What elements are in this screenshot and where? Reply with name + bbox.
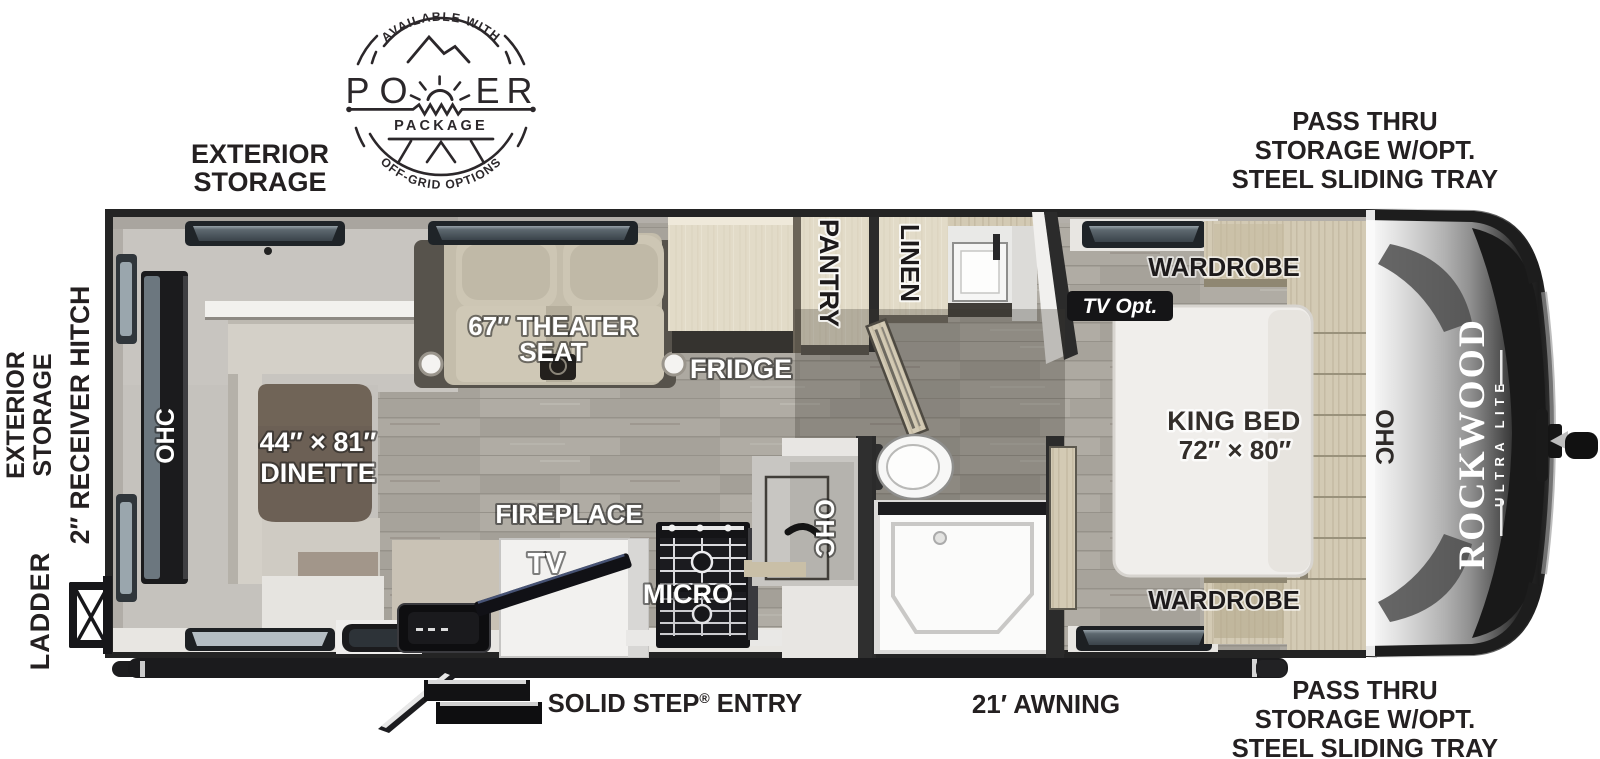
- svg-text:FRIDGE: FRIDGE: [690, 354, 792, 384]
- svg-text:ULTRA LITE: ULTRA LITE: [1492, 381, 1507, 507]
- svg-text:LADDER: LADDER: [25, 552, 55, 671]
- svg-text:WARDROBE: WARDROBE: [1148, 254, 1300, 282]
- svg-text:TV: TV: [527, 548, 565, 580]
- svg-text:STORAGE W/OPT.: STORAGE W/OPT.: [1255, 137, 1476, 165]
- svg-text:OHC: OHC: [1370, 409, 1398, 465]
- svg-text:AVAILABLE WITH: AVAILABLE WITH: [379, 10, 503, 45]
- svg-text:LINEN: LINEN: [895, 224, 925, 302]
- svg-text:STORAGE: STORAGE: [193, 167, 326, 197]
- svg-text:PANTRY: PANTRY: [814, 219, 844, 327]
- svg-text:2″ RECEIVER HITCH: 2″ RECEIVER HITCH: [65, 286, 95, 545]
- svg-text:OHC: OHC: [810, 499, 840, 557]
- svg-text:R: R: [507, 70, 533, 111]
- svg-text:EXTERIOR: EXTERIOR: [191, 139, 329, 169]
- svg-text:P: P: [345, 70, 369, 111]
- svg-text:44″ × 81″: 44″ × 81″: [260, 427, 377, 457]
- svg-text:STORAGE W/OPT.: STORAGE W/OPT.: [1255, 706, 1476, 734]
- svg-text:OHC: OHC: [152, 408, 180, 464]
- svg-text:MICRO: MICRO: [643, 579, 733, 609]
- svg-text:EXTERIOR: EXTERIOR: [2, 351, 30, 479]
- svg-text:STEEL SLIDING TRAY: STEEL SLIDING TRAY: [1232, 166, 1498, 194]
- svg-text:PASS THRU: PASS THRU: [1292, 677, 1437, 705]
- svg-text:SOLID STEP® ENTRY: SOLID STEP® ENTRY: [548, 690, 803, 718]
- svg-text:PACKAGE: PACKAGE: [394, 118, 488, 134]
- svg-text:21′ AWNING: 21′ AWNING: [972, 689, 1120, 719]
- svg-text:STEEL SLIDING TRAY: STEEL SLIDING TRAY: [1232, 735, 1498, 759]
- svg-text:FIREPLACE: FIREPLACE: [495, 499, 642, 529]
- svg-text:PASS THRU: PASS THRU: [1292, 108, 1437, 136]
- svg-text:ROCKWOOD: ROCKWOOD: [1452, 318, 1493, 570]
- svg-text:OFF-GRID OPTIONS: OFF-GRID OPTIONS: [378, 155, 504, 192]
- svg-text:KING BED: KING BED: [1167, 406, 1301, 436]
- svg-text:E: E: [475, 70, 499, 111]
- svg-text:WARDROBE: WARDROBE: [1148, 587, 1300, 615]
- svg-text:STORAGE: STORAGE: [29, 353, 57, 476]
- svg-text:DINETTE: DINETTE: [260, 458, 376, 488]
- svg-text:TV Opt.: TV Opt.: [1083, 295, 1158, 318]
- svg-text:SEAT: SEAT: [519, 337, 587, 367]
- svg-text:O: O: [379, 70, 407, 111]
- svg-text:72″ × 80″: 72″ × 80″: [1179, 435, 1291, 465]
